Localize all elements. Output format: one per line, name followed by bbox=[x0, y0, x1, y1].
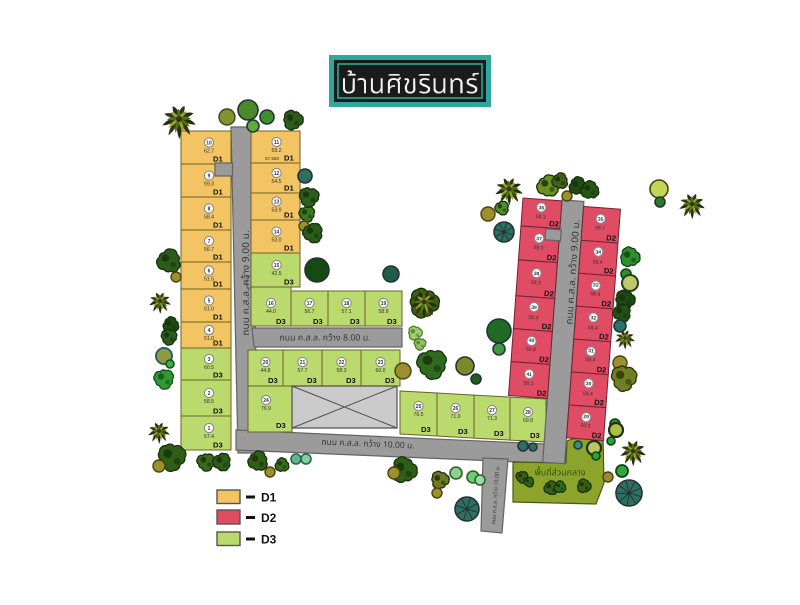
svg-text:D3: D3 bbox=[387, 317, 397, 326]
svg-text:D1: D1 bbox=[261, 491, 277, 505]
svg-text:76.5: 76.5 bbox=[413, 412, 423, 418]
svg-text:D1: D1 bbox=[284, 211, 294, 220]
svg-text:58.4: 58.4 bbox=[528, 315, 539, 322]
svg-text:D1: D1 bbox=[213, 280, 223, 289]
svg-text:D3: D3 bbox=[421, 425, 431, 434]
svg-text:57.7: 57.7 bbox=[297, 368, 307, 374]
svg-text:58.1: 58.1 bbox=[523, 381, 534, 388]
svg-text:D2: D2 bbox=[604, 266, 614, 276]
svg-text:58.3: 58.3 bbox=[535, 214, 546, 221]
svg-text:D2: D2 bbox=[539, 355, 549, 365]
svg-text:44.0: 44.0 bbox=[266, 309, 276, 315]
svg-text:19: 19 bbox=[381, 301, 387, 307]
svg-text:1: 1 bbox=[208, 426, 211, 432]
svg-text:D2: D2 bbox=[601, 299, 611, 309]
svg-text:D3: D3 bbox=[350, 317, 360, 326]
svg-text:53.0: 53.0 bbox=[271, 238, 281, 244]
svg-text:59.2: 59.2 bbox=[271, 148, 281, 154]
svg-text:58.7: 58.7 bbox=[595, 225, 606, 232]
svg-text:8: 8 bbox=[208, 206, 211, 212]
svg-text:58.4: 58.4 bbox=[587, 325, 598, 332]
svg-text:D1: D1 bbox=[213, 155, 223, 164]
svg-text:3: 3 bbox=[208, 357, 211, 363]
svg-text:D1: D1 bbox=[284, 184, 294, 193]
svg-text:D2: D2 bbox=[596, 365, 606, 375]
svg-text:D3: D3 bbox=[276, 421, 286, 430]
svg-text:D2: D2 bbox=[549, 219, 559, 229]
svg-text:5: 5 bbox=[208, 298, 211, 304]
svg-text:53.9: 53.9 bbox=[271, 208, 281, 214]
svg-text:22: 22 bbox=[339, 360, 345, 366]
svg-text:7: 7 bbox=[208, 239, 211, 245]
svg-text:50.3: 50.3 bbox=[580, 423, 591, 430]
svg-text:9: 9 bbox=[208, 173, 211, 179]
svg-text:D3: D3 bbox=[213, 371, 223, 380]
svg-text:D1: D1 bbox=[213, 253, 223, 262]
svg-text:D1: D1 bbox=[213, 221, 223, 230]
svg-text:34: 34 bbox=[595, 249, 601, 255]
svg-text:33: 33 bbox=[593, 282, 599, 288]
svg-text:69.8: 69.8 bbox=[523, 418, 533, 424]
svg-text:57.560: 57.560 bbox=[265, 156, 279, 161]
svg-text:6: 6 bbox=[208, 268, 211, 274]
svg-text:42.5: 42.5 bbox=[271, 271, 281, 277]
svg-text:10: 10 bbox=[206, 140, 212, 146]
svg-text:D1: D1 bbox=[284, 244, 294, 253]
svg-text:58.4: 58.4 bbox=[592, 259, 603, 266]
svg-text:58.4: 58.4 bbox=[585, 357, 596, 364]
svg-text:D2: D2 bbox=[594, 398, 604, 408]
svg-text:21: 21 bbox=[300, 360, 306, 366]
svg-text:16: 16 bbox=[268, 301, 274, 307]
svg-text:12: 12 bbox=[274, 171, 280, 177]
svg-text:4: 4 bbox=[208, 328, 211, 334]
svg-text:D2: D2 bbox=[544, 289, 554, 299]
svg-text:40: 40 bbox=[529, 338, 535, 344]
svg-text:18: 18 bbox=[344, 301, 350, 307]
svg-text:76.9: 76.9 bbox=[261, 406, 271, 412]
svg-text:27: 27 bbox=[489, 408, 495, 414]
svg-text:D2: D2 bbox=[606, 233, 616, 243]
svg-text:D3: D3 bbox=[284, 278, 294, 287]
svg-text:20: 20 bbox=[263, 360, 269, 366]
svg-text:11: 11 bbox=[274, 140, 280, 146]
svg-text:D3: D3 bbox=[213, 407, 223, 416]
svg-text:23: 23 bbox=[378, 360, 384, 366]
svg-text:D3: D3 bbox=[268, 376, 278, 385]
svg-text:D2: D2 bbox=[261, 511, 277, 525]
svg-text:30: 30 bbox=[586, 381, 592, 387]
svg-text:57.4: 57.4 bbox=[204, 434, 214, 440]
svg-text:D3: D3 bbox=[385, 376, 395, 385]
svg-text:36: 36 bbox=[538, 205, 544, 211]
svg-text:D3: D3 bbox=[307, 376, 317, 385]
svg-text:15: 15 bbox=[274, 263, 280, 269]
svg-text:56.7: 56.7 bbox=[304, 309, 314, 315]
svg-text:38: 38 bbox=[533, 271, 539, 277]
svg-text:D2: D2 bbox=[599, 332, 609, 342]
svg-text:D2: D2 bbox=[536, 389, 546, 399]
svg-text:D2: D2 bbox=[546, 253, 556, 263]
svg-text:31: 31 bbox=[588, 348, 594, 354]
svg-text:58.4: 58.4 bbox=[590, 291, 601, 298]
svg-text:D1: D1 bbox=[213, 313, 223, 322]
svg-text:71.3: 71.3 bbox=[487, 416, 497, 422]
svg-text:28: 28 bbox=[525, 410, 531, 416]
svg-text:58.3: 58.3 bbox=[531, 280, 542, 287]
svg-text:D1: D1 bbox=[213, 339, 223, 348]
svg-text:44.8: 44.8 bbox=[260, 368, 270, 374]
svg-text:D3: D3 bbox=[494, 429, 504, 438]
svg-text:54.5: 54.5 bbox=[271, 179, 281, 185]
svg-text:25: 25 bbox=[416, 404, 422, 410]
svg-text:58.9: 58.9 bbox=[378, 309, 388, 315]
svg-text:35: 35 bbox=[598, 217, 604, 223]
svg-text:58.3: 58.3 bbox=[336, 368, 346, 374]
svg-text:D3: D3 bbox=[313, 317, 323, 326]
svg-text:58.4: 58.4 bbox=[583, 391, 594, 398]
svg-text:32: 32 bbox=[590, 315, 596, 321]
svg-text:60.0: 60.0 bbox=[375, 368, 385, 374]
svg-text:71.9: 71.9 bbox=[450, 414, 460, 420]
svg-text:58.5: 58.5 bbox=[204, 399, 214, 405]
svg-text:29: 29 bbox=[583, 414, 589, 420]
svg-text:D3: D3 bbox=[346, 376, 356, 385]
svg-text:24: 24 bbox=[263, 398, 269, 404]
svg-text:26: 26 bbox=[453, 406, 459, 412]
svg-text:D1: D1 bbox=[213, 188, 223, 197]
svg-text:39: 39 bbox=[531, 305, 537, 311]
svg-text:D1: D1 bbox=[284, 154, 294, 163]
svg-text:50.8: 50.8 bbox=[526, 347, 537, 354]
svg-text:D2: D2 bbox=[541, 322, 551, 332]
svg-text:57.1: 57.1 bbox=[341, 309, 351, 315]
svg-text:2: 2 bbox=[208, 391, 211, 397]
svg-text:D3: D3 bbox=[276, 317, 286, 326]
svg-text:D3: D3 bbox=[530, 431, 540, 440]
svg-text:13: 13 bbox=[274, 199, 280, 205]
svg-text:D2: D2 bbox=[591, 431, 601, 441]
svg-text:41: 41 bbox=[526, 372, 532, 378]
svg-text:D3: D3 bbox=[213, 441, 223, 450]
svg-text:17: 17 bbox=[307, 301, 313, 307]
svg-text:58.3: 58.3 bbox=[533, 245, 544, 252]
svg-text:14: 14 bbox=[274, 229, 280, 235]
svg-text:D3: D3 bbox=[261, 533, 277, 547]
svg-text:D3: D3 bbox=[458, 427, 468, 436]
svg-text:37: 37 bbox=[536, 236, 542, 242]
